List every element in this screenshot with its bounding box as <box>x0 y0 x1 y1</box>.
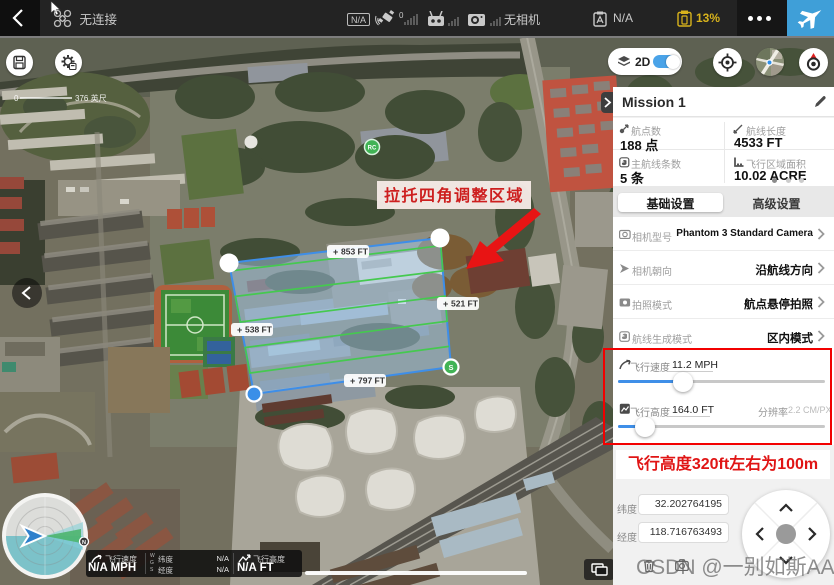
svg-text:+: + <box>443 299 448 309</box>
svg-text:538 FT: 538 FT <box>245 325 273 335</box>
svg-text:S: S <box>448 363 453 372</box>
svg-text:0: 0 <box>14 94 19 103</box>
svg-text:0: 0 <box>399 11 404 20</box>
svg-text:521 FT: 521 FT <box>451 299 479 309</box>
svg-text:376 英尺: 376 英尺 <box>75 93 107 103</box>
svg-text:853 FT: 853 FT <box>341 247 369 257</box>
svg-text:+: + <box>333 247 338 257</box>
svg-text:+: + <box>350 376 355 386</box>
svg-text:RC: RC <box>368 146 377 152</box>
svg-text:拉托四角调整区域: 拉托四角调整区域 <box>384 186 524 205</box>
svg-text:2D: 2D <box>635 55 651 69</box>
svg-text:N: N <box>82 540 86 546</box>
svg-text:797 FT: 797 FT <box>358 376 386 386</box>
svg-text:+: + <box>237 325 242 335</box>
